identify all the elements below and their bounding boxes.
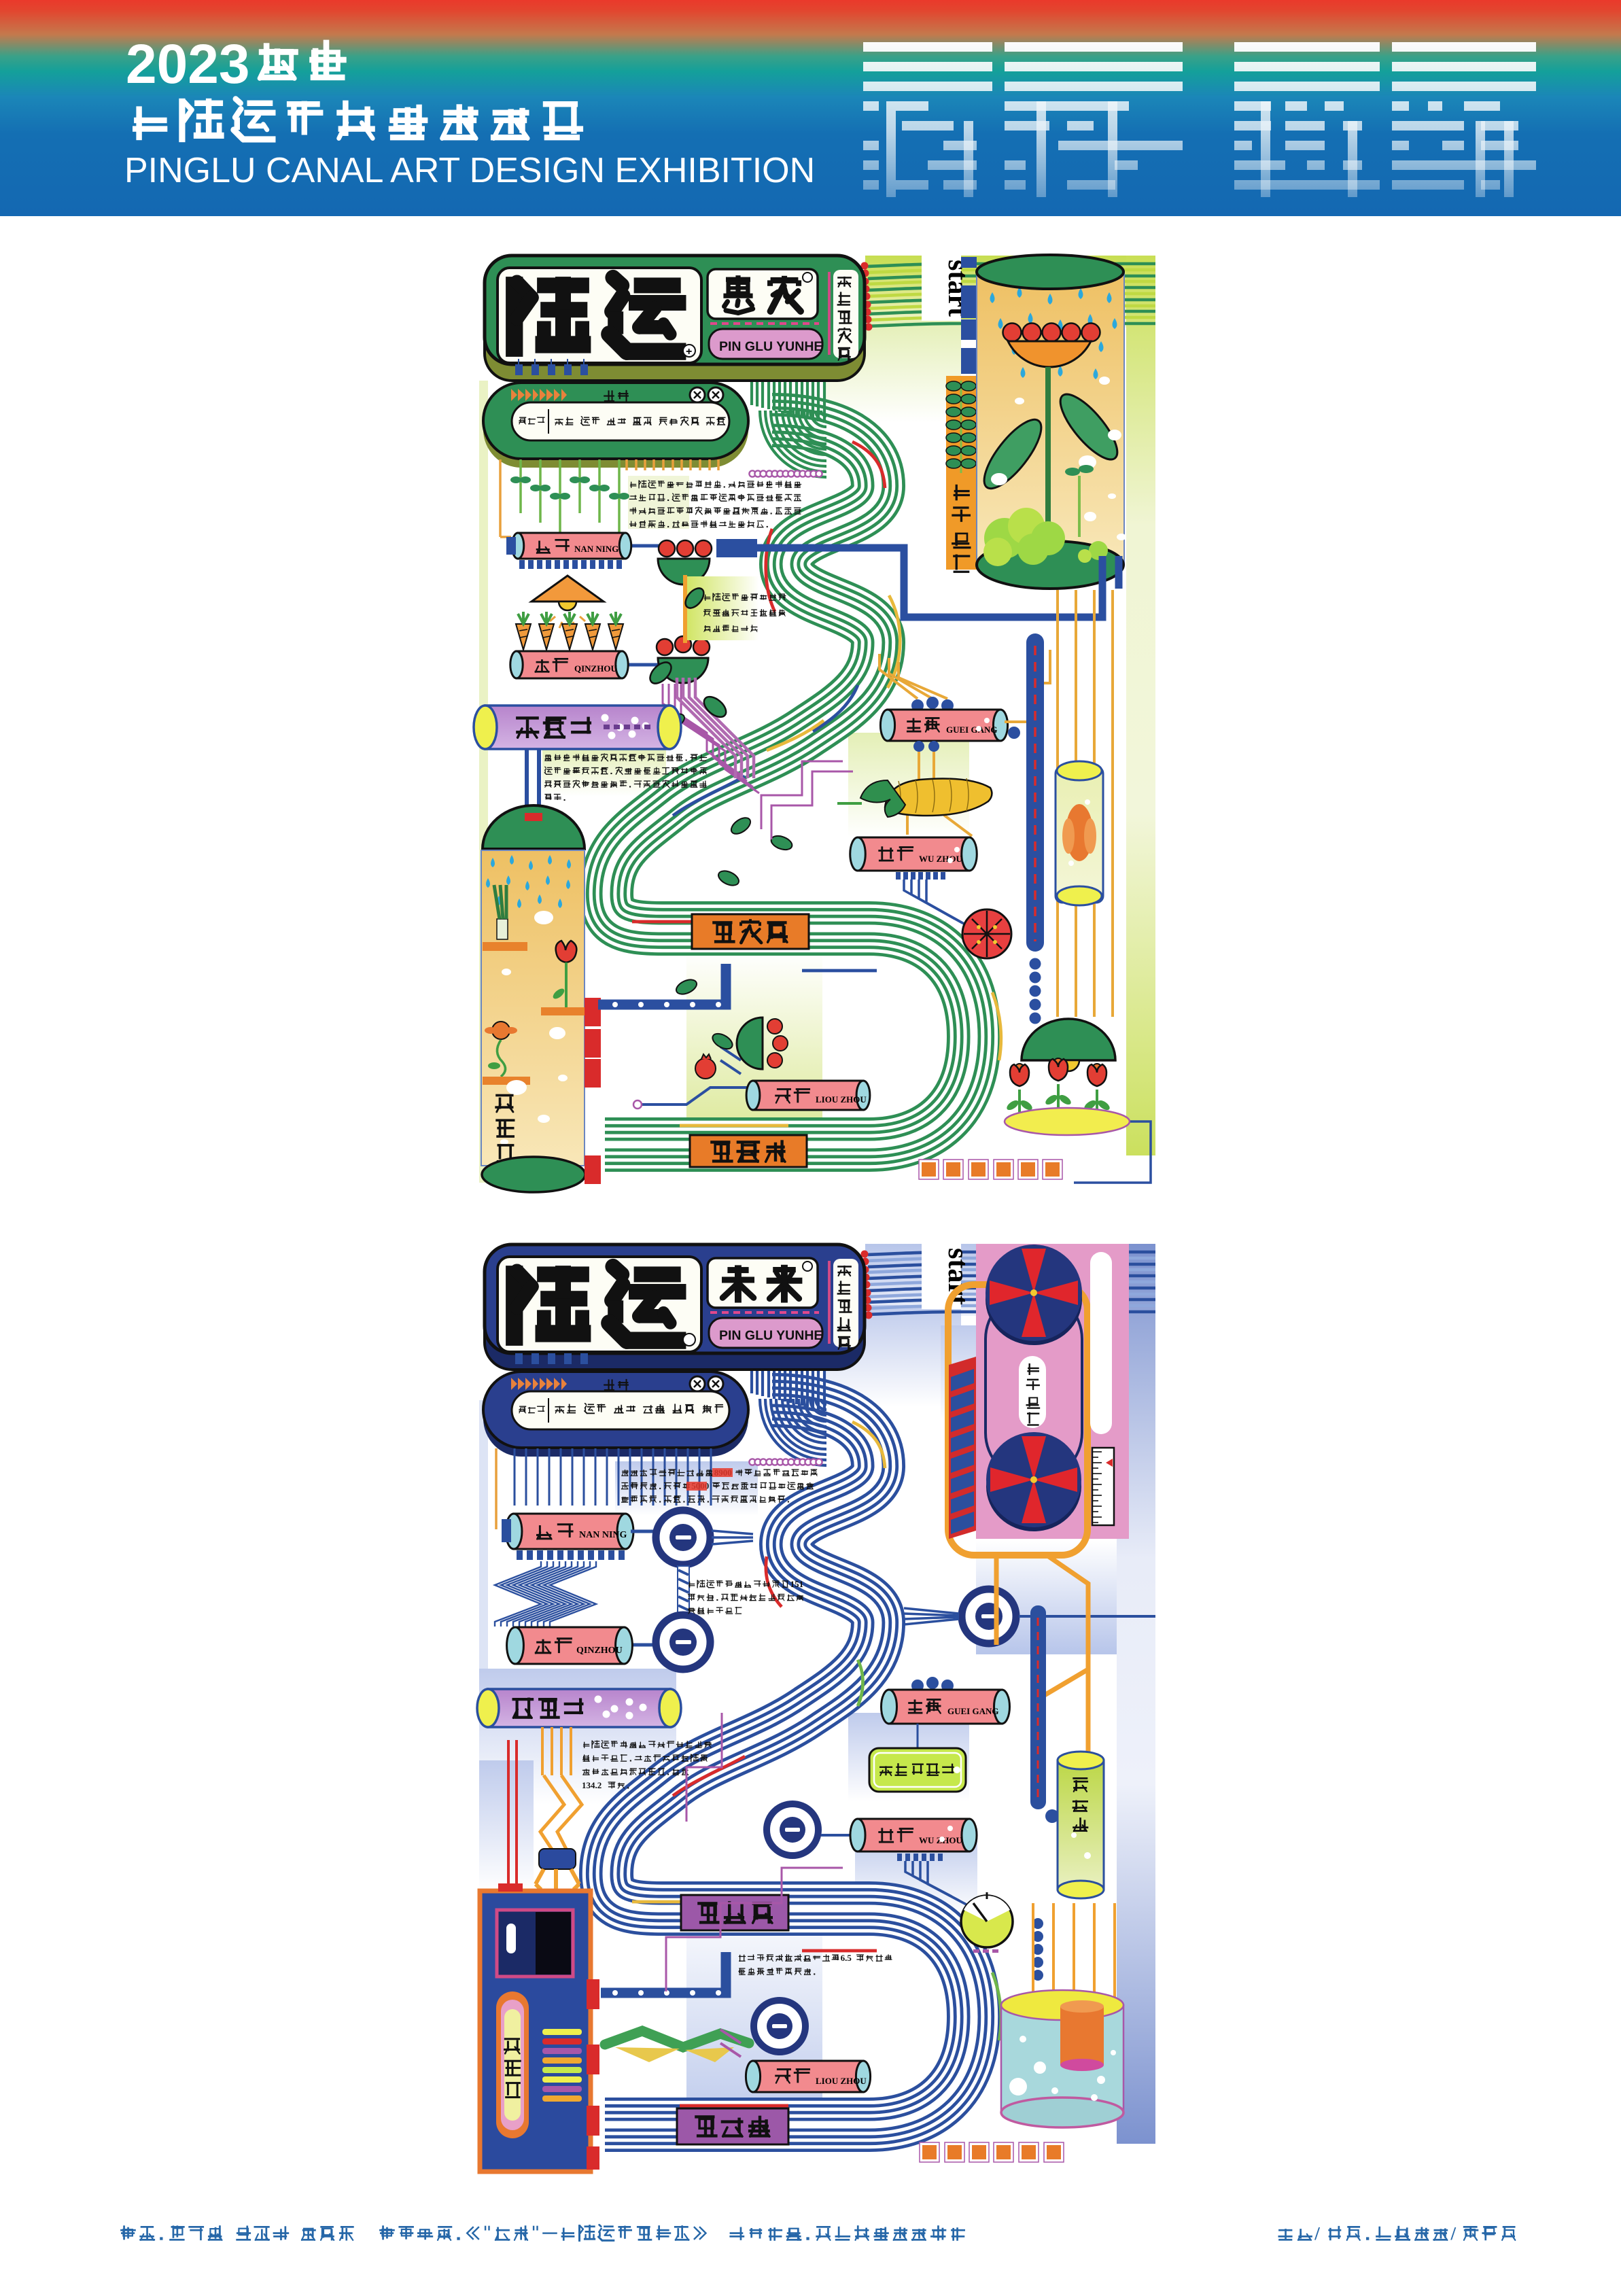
svg-text:6.5: 6.5 — [841, 1953, 852, 1963]
svg-text:2023: 2023 — [126, 33, 249, 95]
svg-text:NAN NING: NAN NING — [579, 1530, 627, 1540]
svg-text:WU ZHOU: WU ZHOU — [919, 854, 963, 864]
svg-text:/: / — [1314, 2223, 1320, 2244]
svg-text:NAN NING: NAN NING — [574, 544, 618, 554]
svg-text:151: 151 — [790, 1579, 804, 1589]
svg-text:PIN GLU YUNHE: PIN GLU YUNHE — [719, 339, 822, 354]
svg-text:QINZHOU: QINZHOU — [576, 1646, 623, 1656]
svg-text:GUEI GANG: GUEI GANG — [947, 1706, 998, 1716]
svg-text:PIN GLU YUNHE: PIN GLU YUNHE — [719, 1328, 822, 1343]
svg-text:+: + — [686, 346, 692, 358]
svg-text:start: start — [942, 1248, 973, 1305]
svg-text:/: / — [1450, 2223, 1457, 2244]
svg-text:LIOU ZHOU: LIOU ZHOU — [816, 2076, 867, 2086]
svg-text:PINGLU CANAL ART DESIGN EXHIBI: PINGLU CANAL ART DESIGN EXHIBITION — [124, 151, 815, 190]
svg-text:GUEI GANG: GUEI GANG — [946, 725, 997, 735]
svg-text:QINZHOU: QINZHOU — [574, 663, 617, 674]
svg-text:134.2: 134.2 — [582, 1780, 602, 1790]
svg-text:LIOU ZHOU: LIOU ZHOU — [816, 1094, 867, 1104]
